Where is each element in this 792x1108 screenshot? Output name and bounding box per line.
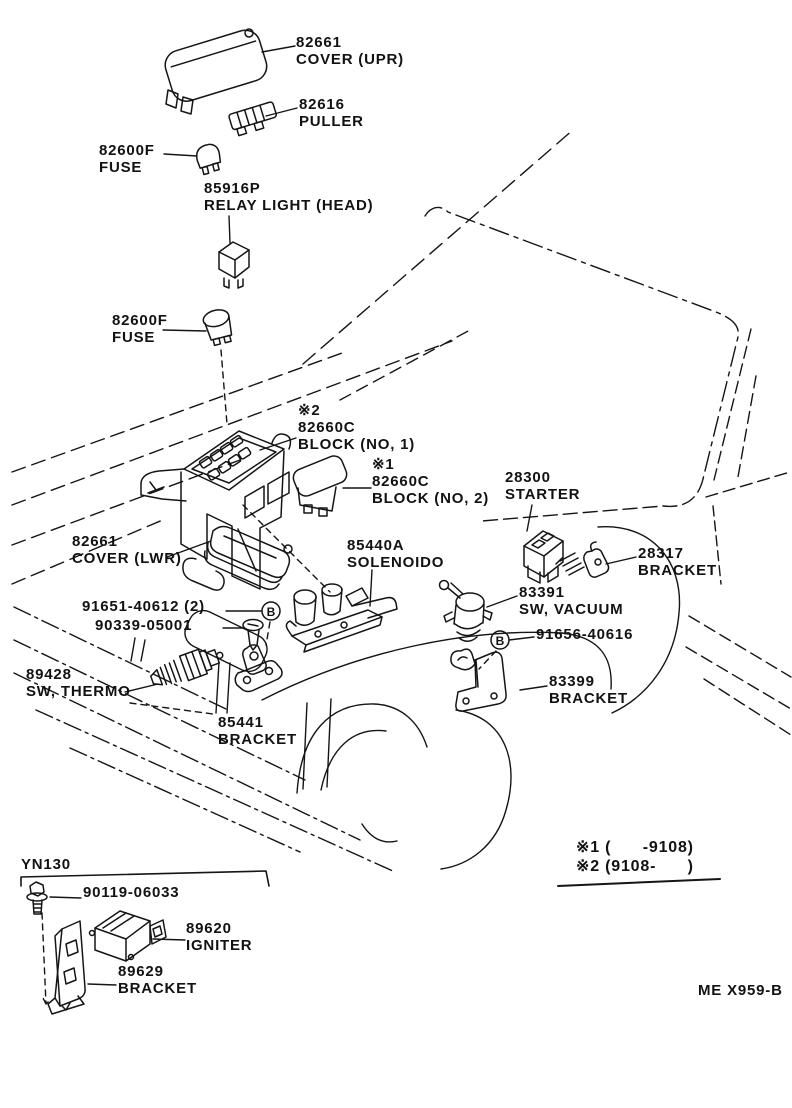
label-relay-light-head-line: 85916P (204, 180, 373, 197)
label-page-code: ME X959-B (698, 982, 783, 999)
label-bolt-90119: 90119-06033 (83, 884, 179, 901)
label-solenoid: 85440ASOLENOIDO (347, 537, 444, 571)
label-block-no-2-line: BLOCK (NO, 2) (372, 490, 489, 507)
label-block-no-1: ※282660CBLOCK (NO, 1) (298, 402, 415, 453)
label-bolt-91656: 91656-40616 (536, 626, 633, 643)
label-bolt-91656-line: 91656-40616 (536, 626, 633, 643)
label-fuse-lower-line: 82600F (112, 312, 168, 329)
label-sw-vacuum-line: 83391 (519, 584, 623, 601)
label-bracket-89629: 89629BRACKET (118, 963, 197, 997)
label-igniter-line: IGNITER (186, 937, 252, 954)
label-page-code-line: ME X959-B (698, 982, 783, 999)
label-block-no-2-line: ※1 (372, 456, 489, 473)
label-puller-line: PULLER (299, 113, 364, 130)
label-screw-90339-line: 90339-05001 (95, 617, 192, 634)
label-cover-upr-line: 82661 (296, 34, 404, 51)
label-solenoid-line: SOLENOIDO (347, 554, 444, 571)
label-cover-upr-line: COVER (UPR) (296, 51, 404, 68)
label-block-no-1-line: 82660C (298, 419, 415, 436)
label-fuse-lower: 82600FFUSE (112, 312, 168, 346)
label-puller: 82616PULLER (299, 96, 364, 130)
label-note-2-line: ※2 (9108- ) (576, 858, 694, 875)
label-bracket-85441-line: BRACKET (218, 731, 297, 748)
label-bracket-85441: 85441BRACKET (218, 714, 297, 748)
label-bracket-89629-line: BRACKET (118, 980, 197, 997)
label-block-no-1-line: BLOCK (NO, 1) (298, 436, 415, 453)
label-fuse-upper-line: 82600F (99, 142, 155, 159)
label-sw-vacuum-line: SW, VACUUM (519, 601, 623, 618)
label-bolt-91651-line: 91651-40612 (2) (82, 598, 205, 615)
label-screw-90339: 90339-05001 (95, 617, 192, 634)
label-starter-line: 28300 (505, 469, 580, 486)
label-fuse-upper-line: FUSE (99, 159, 155, 176)
label-bracket-83399-line: BRACKET (549, 690, 628, 707)
label-sw-thermo: 89428SW, THERMO (26, 666, 131, 700)
label-puller-line: 82616 (299, 96, 364, 113)
label-block-no-2-line: 82660C (372, 473, 489, 490)
label-bracket-28317-line: 28317 (638, 545, 717, 562)
label-bolt-90119-line: 90119-06033 (83, 884, 179, 901)
label-layer: 82661COVER (UPR)82616PULLER82600FFUSE859… (0, 0, 792, 1108)
parts-catalog-page: { "diagram": { "page_code": "ME X959-B",… (0, 0, 792, 1108)
label-bolt-91651: 91651-40612 (2) (82, 598, 205, 615)
label-sw-vacuum: 83391SW, VACUUM (519, 584, 623, 618)
label-note-1: ※1 ( -9108) (576, 839, 694, 856)
label-cover-lwr-line: 82661 (72, 533, 182, 550)
label-cover-lwr-line: COVER (LWR) (72, 550, 182, 567)
label-solenoid-line: 85440A (347, 537, 444, 554)
label-bracket-85441-line: 85441 (218, 714, 297, 731)
label-starter: 28300STARTER (505, 469, 580, 503)
label-model-code: YN130 (21, 856, 71, 873)
label-sw-thermo-line: SW, THERMO (26, 683, 131, 700)
label-model-code-line: YN130 (21, 856, 71, 873)
label-block-no-1-line: ※2 (298, 402, 415, 419)
label-relay-light-head: 85916PRELAY LIGHT (HEAD) (204, 180, 373, 214)
label-bracket-28317: 28317BRACKET (638, 545, 717, 579)
label-bracket-83399: 83399BRACKET (549, 673, 628, 707)
label-note-1-line: ※1 ( -9108) (576, 839, 694, 856)
label-block-no-2: ※182660CBLOCK (NO, 2) (372, 456, 489, 507)
label-note-2: ※2 (9108- ) (576, 858, 694, 875)
label-starter-line: STARTER (505, 486, 580, 503)
label-igniter-line: 89620 (186, 920, 252, 937)
label-relay-light-head-line: RELAY LIGHT (HEAD) (204, 197, 373, 214)
label-bracket-83399-line: 83399 (549, 673, 628, 690)
label-fuse-lower-line: FUSE (112, 329, 168, 346)
label-fuse-upper: 82600FFUSE (99, 142, 155, 176)
label-bracket-28317-line: BRACKET (638, 562, 717, 579)
label-sw-thermo-line: 89428 (26, 666, 131, 683)
label-bracket-89629-line: 89629 (118, 963, 197, 980)
label-cover-upr: 82661COVER (UPR) (296, 34, 404, 68)
label-cover-lwr: 82661COVER (LWR) (72, 533, 182, 567)
label-igniter: 89620IGNITER (186, 920, 252, 954)
